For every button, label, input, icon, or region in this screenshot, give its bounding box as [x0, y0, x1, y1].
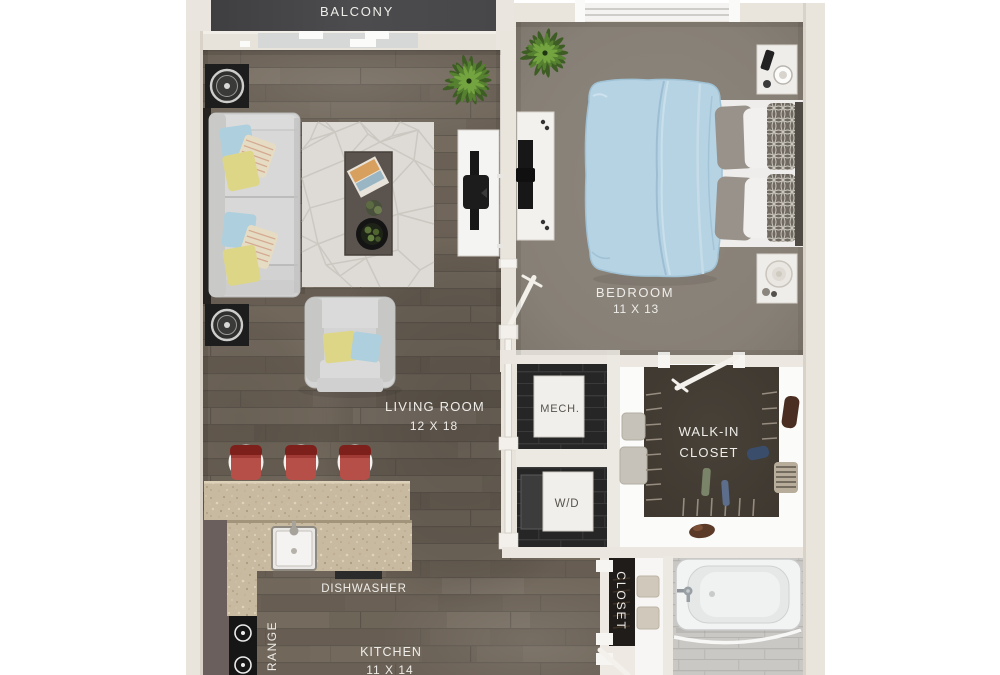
svg-text:11 X 14: 11 X 14 — [366, 663, 413, 675]
svg-text:BALCONY: BALCONY — [320, 4, 394, 19]
svg-text:KITCHEN: KITCHEN — [360, 645, 422, 659]
svg-text:12 X 18: 12 X 18 — [410, 419, 458, 433]
svg-text:WALK-IN: WALK-IN — [679, 424, 740, 439]
svg-text:11 X 13: 11 X 13 — [613, 302, 659, 316]
svg-text:BEDROOM: BEDROOM — [596, 285, 674, 300]
svg-text:MECH.: MECH. — [540, 403, 579, 415]
svg-text:CLOSET: CLOSET — [679, 445, 738, 460]
svg-text:RANGE: RANGE — [265, 621, 279, 671]
svg-text:W/D: W/D — [555, 498, 580, 510]
svg-text:LIVING ROOM: LIVING ROOM — [385, 399, 485, 414]
svg-text:CLOSET: CLOSET — [614, 571, 628, 630]
svg-text:DISHWASHER: DISHWASHER — [321, 583, 407, 595]
